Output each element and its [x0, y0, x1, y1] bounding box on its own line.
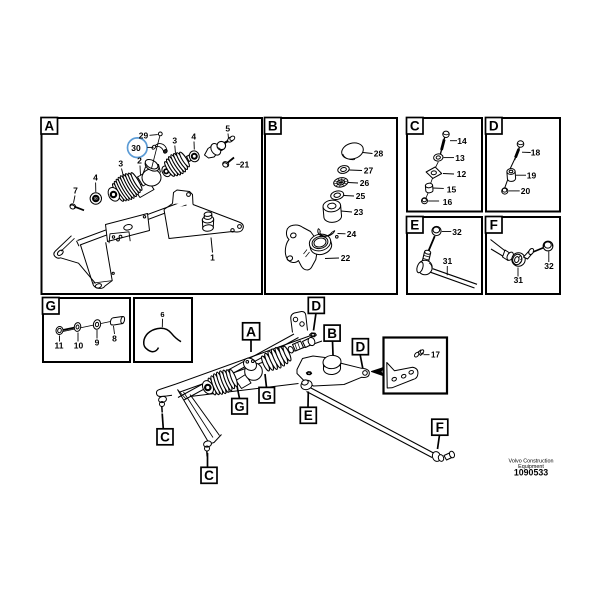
- svg-text:6: 6: [160, 310, 164, 319]
- svg-text:9: 9: [95, 338, 100, 348]
- svg-text:28: 28: [374, 149, 384, 159]
- svg-text:D: D: [311, 298, 321, 313]
- svg-text:16: 16: [443, 197, 453, 207]
- svg-text:30: 30: [131, 143, 141, 153]
- svg-text:2: 2: [137, 156, 142, 166]
- svg-text:A: A: [246, 323, 256, 339]
- svg-text:F: F: [490, 218, 498, 233]
- svg-text:24: 24: [347, 229, 357, 239]
- svg-text:21: 21: [240, 160, 250, 170]
- svg-text:17: 17: [431, 351, 440, 360]
- svg-text:C: C: [160, 430, 170, 445]
- svg-text:8: 8: [112, 334, 117, 344]
- svg-text:G: G: [235, 399, 245, 414]
- svg-text:3: 3: [118, 159, 123, 169]
- svg-text:14: 14: [457, 136, 467, 146]
- svg-text:10: 10: [74, 341, 84, 351]
- svg-text:1090533: 1090533: [514, 468, 548, 478]
- svg-text:15: 15: [447, 185, 457, 195]
- svg-text:29: 29: [139, 131, 149, 141]
- svg-text:G: G: [262, 388, 272, 403]
- svg-text:4: 4: [191, 132, 196, 142]
- svg-text:E: E: [410, 218, 419, 233]
- svg-text:B: B: [268, 119, 278, 134]
- svg-text:19: 19: [527, 171, 537, 181]
- svg-text:3: 3: [172, 136, 177, 146]
- svg-text:32: 32: [544, 261, 554, 271]
- svg-text:C: C: [410, 119, 420, 134]
- svg-text:11: 11: [55, 341, 64, 351]
- svg-text:A: A: [44, 119, 54, 134]
- svg-text:7: 7: [73, 186, 78, 196]
- svg-text:20: 20: [521, 186, 531, 196]
- svg-text:27: 27: [364, 166, 374, 176]
- svg-text:31: 31: [443, 256, 453, 266]
- svg-text:G: G: [46, 299, 57, 314]
- svg-text:5: 5: [225, 124, 230, 134]
- svg-text:25: 25: [356, 191, 366, 201]
- svg-text:23: 23: [354, 207, 364, 217]
- svg-text:D: D: [356, 340, 366, 355]
- svg-text:E: E: [304, 408, 313, 423]
- svg-text:18: 18: [531, 148, 541, 158]
- svg-text:1: 1: [210, 253, 215, 263]
- svg-text:32: 32: [452, 227, 462, 237]
- svg-text:F: F: [436, 420, 444, 435]
- svg-text:D: D: [489, 119, 499, 134]
- svg-text:B: B: [327, 326, 337, 341]
- svg-text:12: 12: [457, 169, 467, 179]
- svg-text:22: 22: [341, 253, 351, 263]
- svg-text:4: 4: [93, 173, 98, 183]
- svg-text:13: 13: [455, 153, 465, 163]
- svg-text:26: 26: [360, 178, 370, 188]
- svg-text:C: C: [204, 468, 214, 483]
